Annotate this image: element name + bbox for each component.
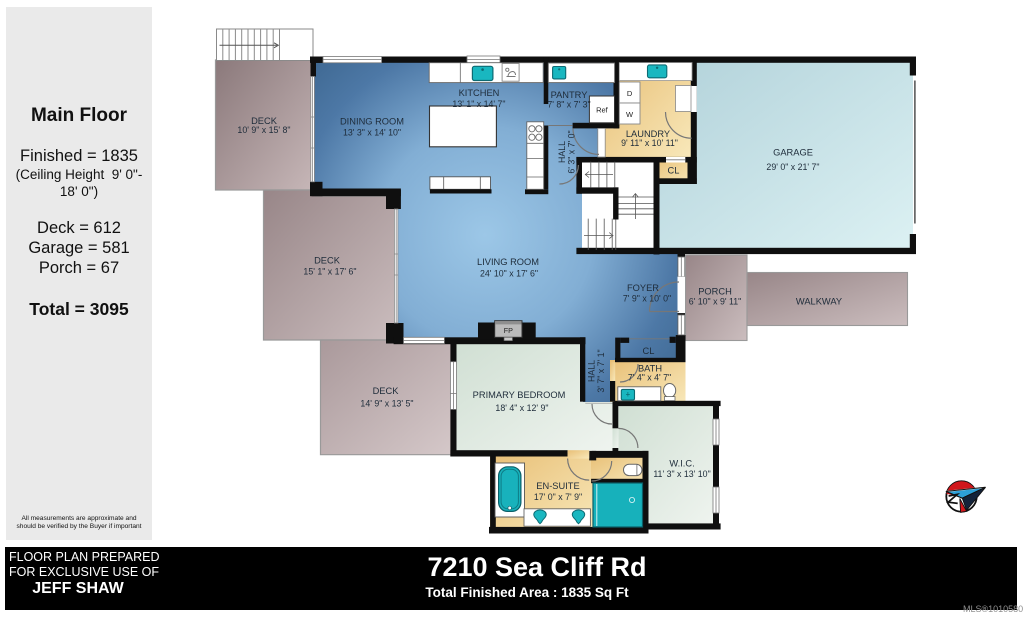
svg-text:24' 10" x 17' 6": 24' 10" x 17' 6" <box>480 269 538 279</box>
svg-text:KITCHEN: KITCHEN <box>459 88 500 98</box>
svg-text:18' 4" x 12' 9": 18' 4" x 12' 9" <box>495 403 548 413</box>
svg-text:6' 3" x 7' 0": 6' 3" x 7' 0" <box>567 130 577 173</box>
svg-text:WALKWAY: WALKWAY <box>796 297 842 307</box>
svg-text:7' 4" x 4' 7": 7' 4" x 4' 7" <box>628 373 671 383</box>
svg-text:LIVING ROOM: LIVING ROOM <box>477 257 539 267</box>
svg-text:D: D <box>627 89 633 98</box>
svg-text:GARAGE: GARAGE <box>773 148 813 158</box>
svg-text:EN-SUITE: EN-SUITE <box>536 481 579 491</box>
svg-text:Ref: Ref <box>596 106 609 115</box>
svg-text:W.I.C.: W.I.C. <box>669 459 694 469</box>
svg-text:HALL: HALL <box>587 360 597 382</box>
svg-text:CL: CL <box>668 166 680 176</box>
svg-text:FP: FP <box>504 326 513 335</box>
svg-text:7' 9" x 10' 0": 7' 9" x 10' 0" <box>623 294 671 304</box>
svg-text:FOYER: FOYER <box>627 283 659 293</box>
svg-text:10' 9" x 15' 8": 10' 9" x 15' 8" <box>237 125 290 135</box>
svg-text:6' 10" x 9' 11": 6' 10" x 9' 11" <box>689 297 741 307</box>
svg-text:17' 0" x 7' 9": 17' 0" x 7' 9" <box>534 492 582 502</box>
svg-text:14' 9" x 13' 5": 14' 9" x 13' 5" <box>360 399 413 409</box>
svg-text:3' 7" x 7' 1": 3' 7" x 7' 1" <box>596 349 606 392</box>
svg-text:15' 1" x 17' 6": 15' 1" x 17' 6" <box>303 267 356 277</box>
svg-text:9' 11" x 10' 11": 9' 11" x 10' 11" <box>621 138 678 148</box>
svg-text:11' 3" x 13' 10": 11' 3" x 13' 10" <box>653 469 710 479</box>
svg-text:DECK: DECK <box>314 256 341 266</box>
svg-text:DINING ROOM: DINING ROOM <box>340 117 404 127</box>
svg-text:PORCH: PORCH <box>698 287 732 297</box>
svg-text:PRIMARY BEDROOM: PRIMARY BEDROOM <box>473 390 566 400</box>
svg-text:7' 8" x 7' 3": 7' 8" x 7' 3" <box>547 99 590 109</box>
svg-text:29' 0" x 21' 7": 29' 0" x 21' 7" <box>766 162 819 172</box>
svg-text:W: W <box>626 110 634 119</box>
svg-text:DECK: DECK <box>373 386 400 396</box>
svg-text:CL: CL <box>643 346 655 356</box>
svg-text:13' 3" x 14' 10": 13' 3" x 14' 10" <box>343 128 401 138</box>
svg-text:13' 1" x 14' 7": 13' 1" x 14' 7" <box>452 99 505 109</box>
svg-text:HALL: HALL <box>557 141 567 163</box>
